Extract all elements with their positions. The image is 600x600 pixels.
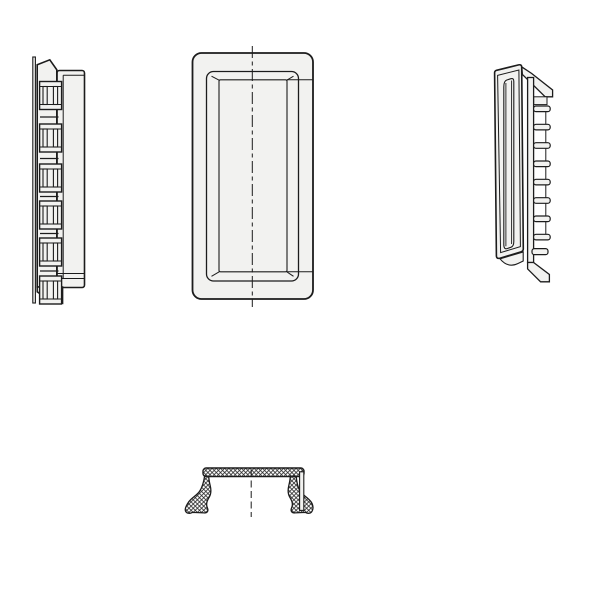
technical-drawing-canvas [0, 0, 600, 600]
drawing-svg [0, 0, 600, 600]
mounting-rib [534, 106, 551, 112]
mounting-rib [534, 216, 551, 222]
front-view [193, 46, 314, 307]
mounting-rib [534, 234, 551, 240]
body-top-step [534, 97, 547, 105]
bottom-section-view [185, 468, 313, 517]
section-flange-bar [300, 472, 304, 511]
body-top-face [522, 67, 553, 97]
mounting-rib [534, 179, 551, 185]
mounting-rib [534, 124, 551, 130]
mounting-rib [534, 198, 551, 204]
body-bottom-tip-right [528, 263, 550, 282]
mounting-rib [534, 161, 551, 167]
mounting-rib [534, 143, 551, 149]
rib-spine [528, 78, 534, 263]
flange-lip-edge [33, 57, 36, 303]
section-left-hook [185, 476, 211, 513]
rib-layer [534, 106, 551, 240]
bottom-rib [532, 249, 548, 255]
section-floor-wall [203, 468, 304, 477]
side-view-left [33, 57, 85, 304]
side-view-right [495, 65, 553, 282]
